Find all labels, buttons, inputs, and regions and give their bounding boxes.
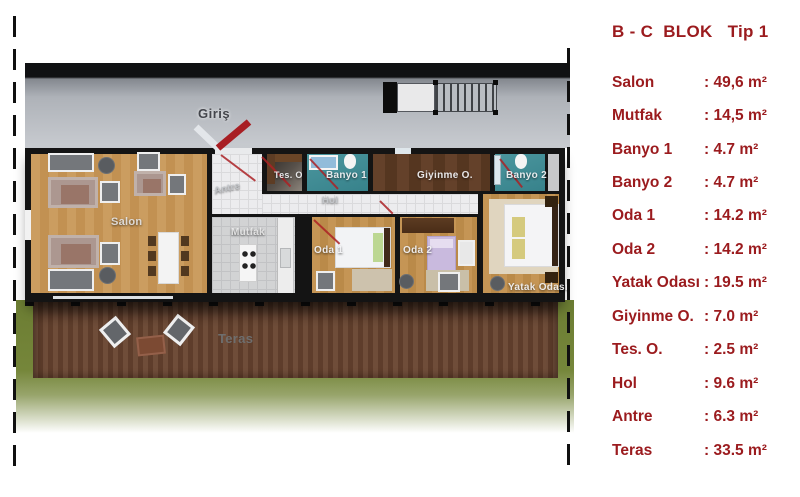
legend-room-name: Antre	[612, 408, 704, 426]
entrance-arrow-icon	[190, 118, 256, 154]
stair-post	[433, 110, 438, 115]
legend-row: Banyo 2: 4.7 m²	[612, 166, 798, 199]
legend-room-name: Salon	[612, 74, 704, 92]
boundary-line-right	[567, 48, 570, 468]
shower-nook	[548, 154, 559, 191]
area-rug	[48, 235, 99, 268]
pouf	[98, 157, 115, 174]
kitchen-counter	[277, 218, 293, 293]
sofa	[48, 153, 94, 172]
bedside-bench	[458, 240, 475, 266]
terrace-glass-door	[53, 293, 173, 302]
armchair	[168, 174, 186, 195]
legend-room-name: Oda 2	[612, 241, 704, 259]
armchair	[438, 272, 460, 292]
wardrobe	[402, 218, 454, 233]
legend-row: Oda 2: 14.2 m²	[612, 233, 798, 266]
legend-row: Salon: 49,6 m²	[612, 66, 798, 99]
legend-room-area: : 2.5 m²	[704, 341, 758, 359]
stair-landing-block	[383, 82, 397, 113]
bed-pillow	[512, 239, 525, 259]
room-label-banyo-1: Banyo 1	[326, 170, 367, 181]
stair-post	[493, 80, 498, 85]
dining-chair	[148, 266, 156, 276]
room-label-salon: Salon	[111, 216, 142, 228]
room-label-yatak: Yatak Odası	[508, 282, 568, 293]
legend-room-name: Yatak Odası	[612, 274, 704, 292]
dining-chair	[148, 251, 156, 261]
sofa	[137, 152, 160, 171]
legend-room-name: Giyinme O.	[612, 308, 704, 326]
pouf	[490, 276, 505, 291]
legend-row: Giyinme O.: 7.0 m²	[612, 300, 798, 333]
legend-row: Antre: 6.3 m²	[612, 400, 798, 433]
bed-pillow	[373, 233, 383, 262]
legend-room-name: Oda 1	[612, 207, 704, 225]
dining-chair	[148, 236, 156, 246]
legend-room-area: : 4.7 m²	[704, 174, 758, 192]
legend-rows: Salon: 49,6 m² Mutfak: 14,5 m² Banyo 1: …	[612, 66, 798, 467]
room-label-giyinme: Giyinme O.	[417, 170, 473, 181]
room-label-hol: Hol	[322, 195, 338, 206]
deck-table	[136, 335, 166, 357]
building-footprint: Salon Antre Tes. O Banyo 1 Giyinme O. Ba…	[25, 148, 565, 302]
legend-title: B - C BLOK Tip 1	[612, 22, 769, 42]
sofa	[48, 269, 94, 291]
legend-room-area: : 6.3 m²	[704, 408, 758, 426]
area-rug	[352, 269, 392, 291]
bed	[504, 204, 559, 267]
room-label-oda-1: Oda 1	[314, 245, 343, 256]
stair-treads	[435, 83, 497, 112]
dining-chair	[181, 266, 189, 276]
legend-row: Banyo 1: 4.7 m²	[612, 133, 798, 166]
legend-row: Mutfak: 14,5 m²	[612, 99, 798, 132]
window	[25, 210, 31, 240]
legend-row: Hol: 9.6 m²	[612, 367, 798, 400]
room-label-banyo-2: Banyo 2	[506, 170, 547, 181]
kitchen-sink	[280, 248, 291, 268]
armchair	[100, 181, 120, 203]
legend-room-name: Banyo 1	[612, 141, 704, 159]
dining-table	[158, 232, 179, 284]
floorplan-page: Teras	[0, 0, 800, 497]
bed-headboard	[384, 228, 390, 267]
kitchen-island	[239, 244, 257, 282]
legend-room-area: : 9.6 m²	[704, 375, 758, 393]
stair-platform	[397, 83, 435, 112]
legend-room-area: : 14,5 m²	[704, 107, 767, 125]
window	[395, 148, 411, 154]
legend-row: Oda 1: 14.2 m²	[612, 200, 798, 233]
pouf	[99, 267, 116, 284]
legend-room-name: Hol	[612, 375, 704, 393]
legend-room-area: : 4.7 m²	[704, 141, 758, 159]
bed-pillow	[512, 217, 525, 237]
dining-chair	[181, 251, 189, 261]
room-label-tes-o: Tes. O	[274, 170, 303, 180]
legend-room-area: : 33.5 m²	[704, 442, 767, 460]
legend-row: Tes. O.: 2.5 m²	[612, 334, 798, 367]
legend-room-area: : 49,6 m²	[704, 74, 767, 92]
legend-room-area: : 14.2 m²	[704, 241, 767, 259]
stair-post	[433, 80, 438, 85]
room-label-teras: Teras	[218, 331, 253, 346]
room-hol	[262, 194, 478, 214]
stair-post	[493, 110, 498, 115]
room-label-mutfak: Mutfak	[231, 227, 265, 238]
area-rug	[134, 171, 166, 196]
exterior-stairs	[383, 82, 499, 113]
toilet	[344, 154, 356, 169]
armchair	[316, 271, 335, 291]
legend-row: Teras: 33.5 m²	[612, 434, 798, 467]
dining-chair	[181, 236, 189, 246]
bed-pillow	[430, 239, 453, 248]
armchair	[100, 242, 120, 265]
toilet	[515, 154, 527, 169]
bed-headboard	[552, 205, 558, 266]
nightstand	[545, 196, 558, 207]
legend-row: Yatak Odası: 19.5 m²	[612, 267, 798, 300]
room-label-oda-2: Oda 2	[403, 245, 432, 256]
legend-room-area: : 7.0 m²	[704, 308, 758, 326]
bed	[335, 227, 391, 268]
legend-room-area: : 14.2 m²	[704, 207, 767, 225]
area-rug	[48, 177, 98, 208]
pouf	[399, 274, 414, 289]
legend-room-name: Teras	[612, 442, 704, 460]
legend-room-name: Mutfak	[612, 107, 704, 125]
legend-room-name: Banyo 2	[612, 174, 704, 192]
boundary-line-left	[13, 16, 16, 468]
legend-room-name: Tes. O.	[612, 341, 704, 359]
legend-room-area: : 19.5 m²	[704, 274, 767, 292]
